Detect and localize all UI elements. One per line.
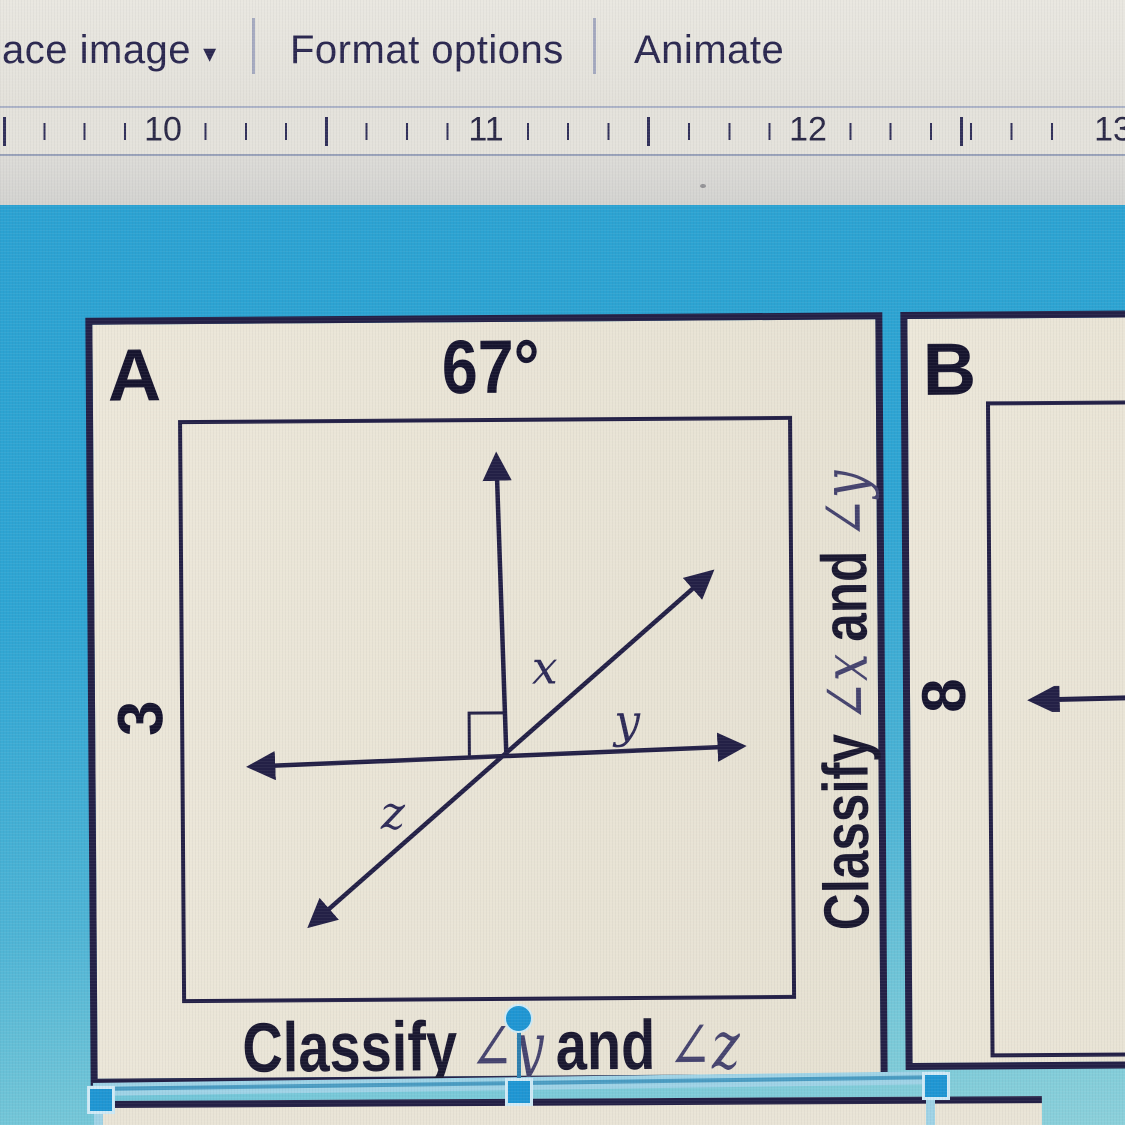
card-b-label: B: [923, 332, 977, 406]
card-a-angle-value: 67°: [442, 330, 540, 407]
side-caption-and: and: [807, 550, 882, 642]
bottom-caption-and: and: [555, 1005, 655, 1086]
format-options-button[interactable]: Format options: [290, 20, 564, 80]
card-b[interactable]: B 8: [900, 309, 1125, 1070]
side-caption-classify: Classify: [808, 734, 883, 931]
ruler-tick-major: [960, 117, 963, 146]
toolbar-separator: [252, 18, 255, 74]
selection-handle-top-center[interactable]: [505, 1078, 533, 1106]
side-caption-angle-y: ∠y: [810, 470, 880, 539]
card-a-bottom-caption: Classify ∠y and ∠z: [182, 1013, 796, 1079]
smudge-dot: [700, 184, 706, 188]
format-options-label: Format options: [290, 28, 564, 73]
animate-button[interactable]: Animate: [634, 20, 784, 80]
card-b-number: 8: [914, 678, 976, 713]
card-a-side-caption: Classify ∠x and ∠y: [812, 421, 878, 981]
card-b-arrow: [1022, 684, 1125, 712]
ruler-number: 11: [459, 111, 512, 150]
ruler-tick-major: [325, 117, 328, 146]
card-a-inner-frame: x y z: [178, 416, 796, 1003]
animate-label: Animate: [634, 28, 784, 73]
ruler-tick-major: [647, 117, 650, 146]
angle-label-y: y: [612, 694, 641, 748]
toolbar-separator: [593, 18, 596, 74]
angle-label-z: z: [380, 786, 406, 840]
card-a-label: A: [107, 338, 161, 412]
screen: ace image ▾ Format options Animate 10 11…: [0, 0, 1125, 1125]
angle-diagram: x y z: [182, 420, 792, 999]
card-b-inner-frame: [986, 399, 1125, 1058]
replace-image-button[interactable]: ace image ▾: [2, 20, 217, 80]
selection-handle-top-right[interactable]: [922, 1072, 950, 1100]
rotation-handle-stem: [517, 1030, 521, 1082]
ruler-number: 13: [1085, 111, 1125, 150]
card-a-number: 3: [108, 700, 172, 736]
ruler-number: 12: [780, 111, 836, 150]
selection-handle-top-left[interactable]: [87, 1086, 115, 1114]
workspace-gap: [0, 156, 1125, 205]
bottom-caption-classify: Classify: [242, 1006, 457, 1087]
angle-label-x: x: [532, 641, 558, 695]
right-angle-marker: [469, 713, 505, 757]
ruler-number: 10: [135, 111, 191, 150]
rotation-handle[interactable]: [504, 1004, 533, 1033]
bottom-caption-angle-z: ∠z: [667, 1006, 740, 1085]
ruler-tick-major: [3, 117, 6, 146]
selected-image-card[interactable]: [100, 1096, 1042, 1125]
toolbar: ace image ▾ Format options Animate: [0, 0, 1125, 106]
card-a[interactable]: A 67° 3 x y z Classify ∠x: [85, 312, 887, 1086]
dropdown-arrow-icon: ▾: [203, 40, 217, 66]
side-caption-angle-x: ∠x: [812, 653, 882, 722]
replace-image-label: ace image: [2, 28, 191, 73]
ruler: 10 11 12 13: [0, 106, 1125, 156]
